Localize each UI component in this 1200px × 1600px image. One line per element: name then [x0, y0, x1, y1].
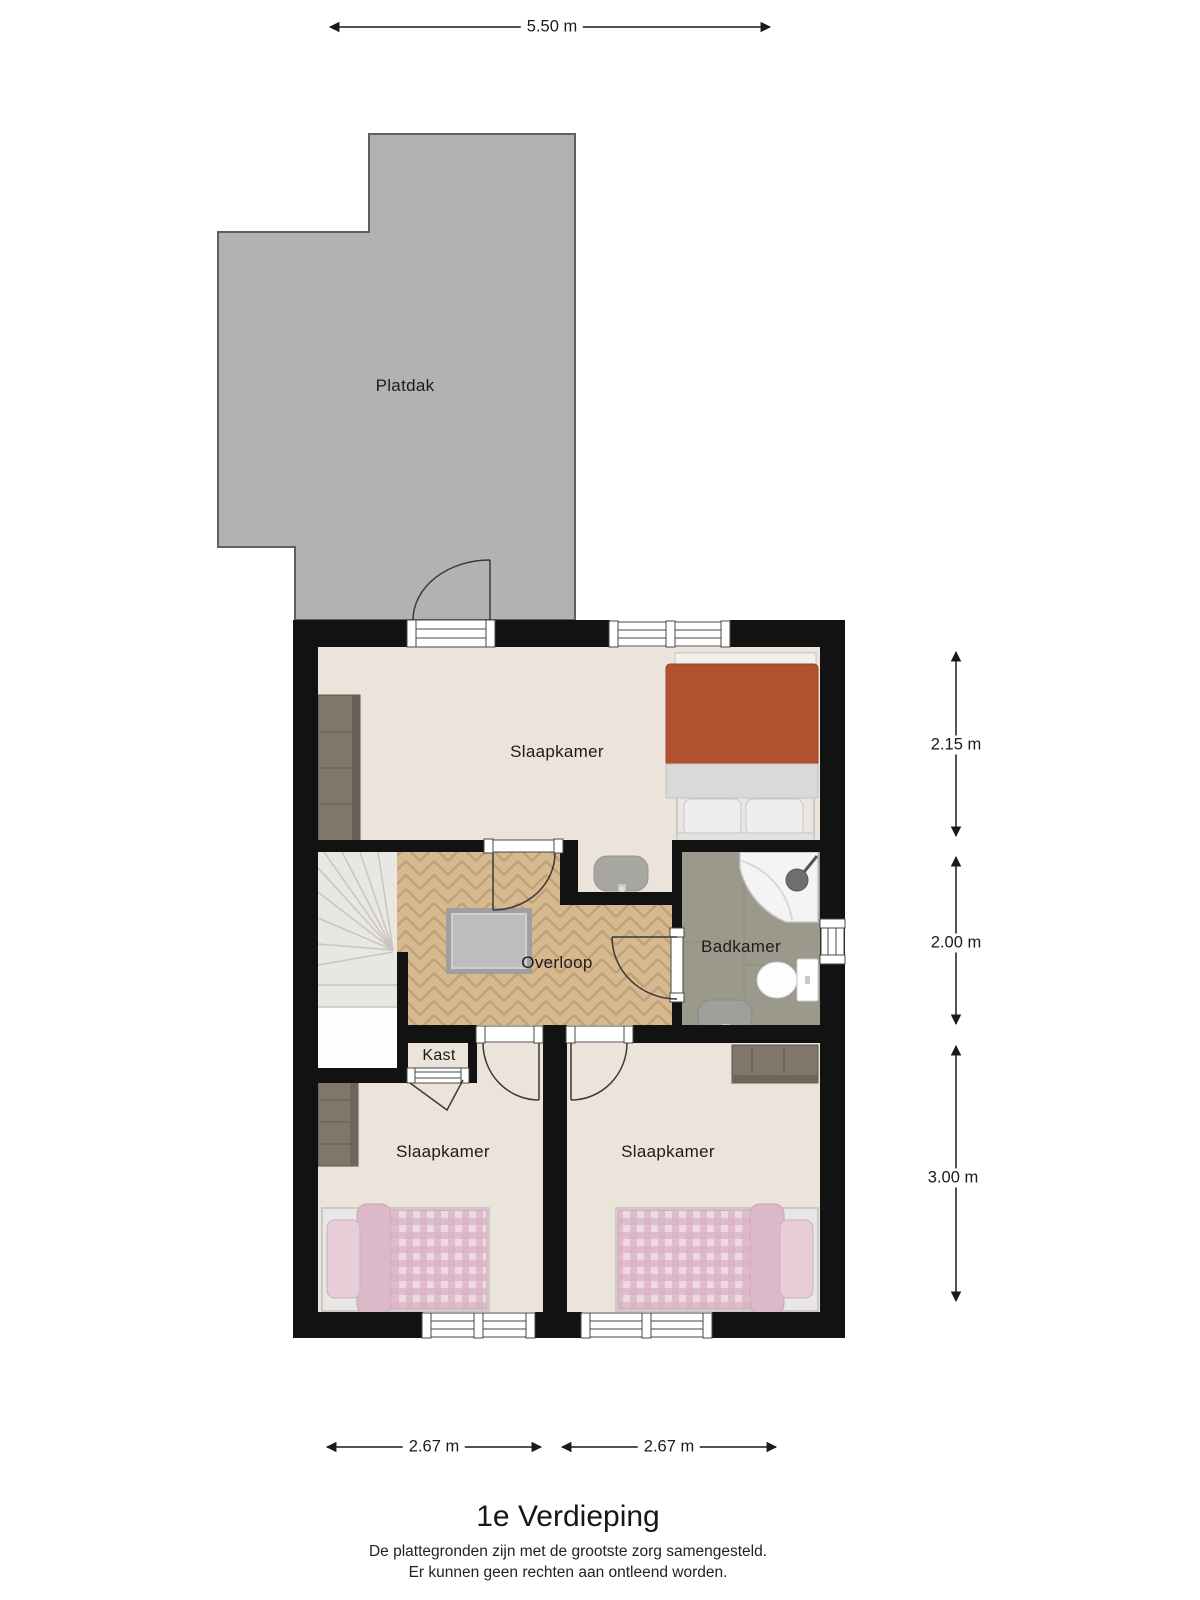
toilet — [757, 959, 818, 1001]
floorplan-canvas — [0, 0, 1200, 1600]
staircase — [318, 852, 397, 1068]
washbasin-alcove — [594, 856, 648, 892]
room-label-badkamer: Badkamer — [701, 937, 781, 957]
desk-right — [732, 1045, 818, 1083]
dimension-bottom-left: 2.67 m — [403, 1438, 465, 1457]
window-bottom-right — [581, 1313, 712, 1338]
skylight — [446, 908, 532, 974]
window-top — [609, 621, 730, 647]
window-bottom-left — [422, 1313, 535, 1338]
wardrobe — [318, 695, 360, 842]
dimension-right-middle: 2.00 m — [925, 934, 987, 953]
room-label-slaapkamer-left: Slaapkamer — [396, 1142, 490, 1162]
dimension-bottom-right: 2.67 m — [638, 1438, 700, 1457]
desk-left — [318, 1078, 358, 1166]
single-bed-left — [322, 1204, 489, 1314]
dimension-right-bottom: 3.00 m — [922, 1169, 984, 1188]
single-bed-right — [616, 1204, 818, 1314]
page-title: 1e Verdieping — [476, 1500, 660, 1534]
disclaimer-line-1: De plattegronden zijn met de grootste zo… — [369, 1543, 767, 1561]
dimension-width-top: 5.50 m — [521, 18, 583, 37]
double-bed — [666, 653, 818, 845]
dimension-right-top: 2.15 m — [925, 736, 987, 755]
room-label-platdak: Platdak — [376, 376, 435, 396]
room-label-slaapkamer-right: Slaapkamer — [621, 1142, 715, 1162]
window-bathroom — [820, 919, 845, 964]
room-label-overloop: Overloop — [521, 953, 592, 973]
room-label-kast: Kast — [422, 1047, 455, 1065]
floorplan-page: 5.50 m Platdak Slaapkamer Overloop Badka… — [0, 0, 1200, 1600]
disclaimer-line-2: Er kunnen geen rechten aan ontleend word… — [409, 1564, 728, 1582]
room-label-slaapkamer-top: Slaapkamer — [510, 742, 604, 762]
